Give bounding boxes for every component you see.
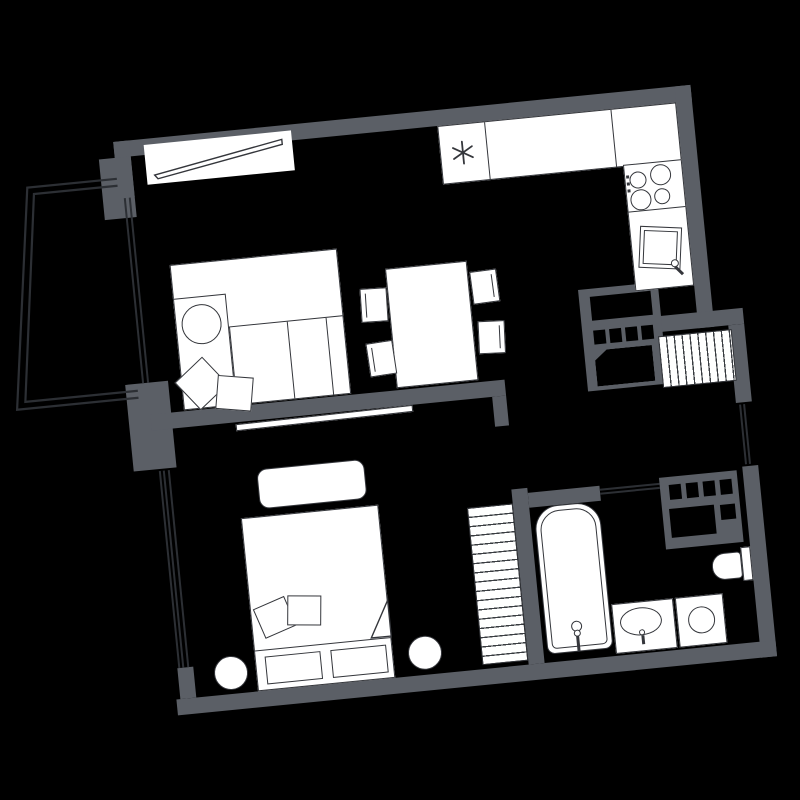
dining-chair-left-1 [359, 287, 388, 323]
chair-backrest-line [365, 294, 368, 318]
toilet-bowl [711, 551, 744, 581]
shaft-bath-vent-1 [669, 484, 682, 500]
bedside-stool-right [406, 634, 443, 671]
dining-chair-right-2 [478, 320, 506, 354]
dining-chair-left-2 [365, 340, 397, 378]
counter-divider-fridge [484, 122, 491, 179]
bedroom-window-line-3 [167, 470, 188, 667]
shaft-hall-vent-1 [593, 329, 606, 344]
shaft-hall-vent-4 [641, 325, 654, 340]
bedroom-bench-rug [256, 459, 367, 509]
shaft-hall-vent-2 [609, 328, 622, 343]
floor-plan-rotated-group [0, 0, 800, 800]
chair-backrest-line [371, 348, 376, 372]
sofa-seat-divider-2 [326, 318, 335, 395]
sofa-throw-pillow-2 [215, 375, 253, 412]
shaft-hall-duct [594, 345, 655, 387]
bedside-stool-left [212, 654, 249, 691]
dining-table [385, 261, 478, 388]
wall-bedroom-left-bottom [177, 667, 196, 699]
sofa-seat-divider-1 [287, 322, 296, 399]
shaft-hall-slot [590, 291, 653, 321]
chair-backrest-line [498, 325, 500, 348]
hall-wardrobe-hatched [658, 329, 737, 388]
bed-drawer-1 [265, 651, 323, 684]
shaft-bath-duct [669, 505, 717, 538]
dining-chair-right-1 [469, 268, 500, 304]
bed-drawer-2 [330, 645, 388, 678]
utility-shaft-hall [578, 282, 668, 391]
bed-pillow-2 [287, 595, 321, 625]
shaft-bath-vent-4 [719, 479, 732, 495]
counter-divider-corner [610, 110, 617, 167]
wall-corridor-stub [492, 396, 509, 427]
chair-backrest-line [490, 274, 494, 297]
shaft-bath-duct-small [720, 504, 736, 520]
shaft-hall-vent-3 [625, 326, 638, 341]
stove-knob-1 [626, 175, 629, 178]
balcony-door-glazing-1 [123, 198, 143, 383]
floor-plan-canvas [0, 0, 800, 800]
shaft-bath-vent-3 [703, 480, 716, 496]
utility-shaft-bath [659, 470, 744, 549]
stove-knob-2 [627, 182, 630, 185]
bedroom-window-line-2 [163, 470, 184, 667]
shaft-bath-vent-2 [686, 482, 699, 498]
stove-knob-3 [627, 189, 630, 192]
